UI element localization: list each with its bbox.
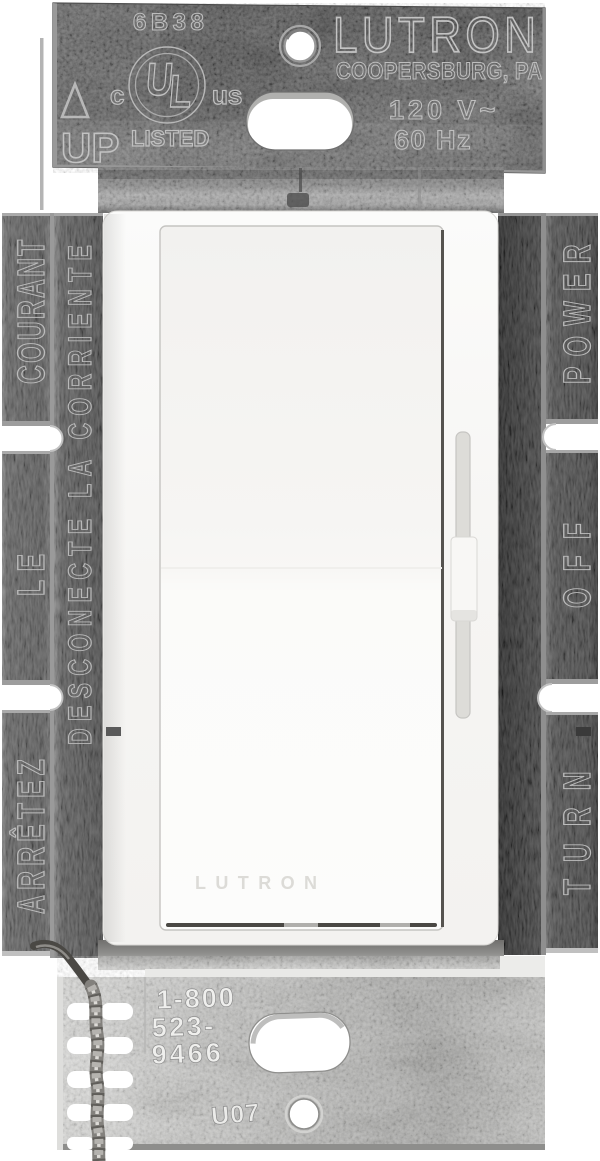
svg-text:LUTRON: LUTRON — [195, 873, 326, 893]
svg-text:POWER: POWER — [555, 234, 598, 384]
svg-text:DESCONECTE LA CORRIENTE: DESCONECTE LA CORRIENTE — [62, 238, 98, 745]
svg-text:60 Hz: 60 Hz — [394, 125, 472, 155]
svg-text:LE: LE — [9, 545, 52, 596]
svg-text:COURANT: COURANT — [9, 238, 52, 384]
svg-text:c: c — [110, 80, 124, 110]
svg-text:6B38: 6B38 — [133, 9, 208, 36]
svg-text:U07: U07 — [210, 1099, 261, 1131]
svg-text:120 V~: 120 V~ — [389, 95, 499, 125]
svg-text:COOPERSBURG, PA: COOPERSBURG, PA — [336, 57, 543, 84]
svg-text:us: us — [212, 80, 242, 110]
svg-text:L: L — [167, 65, 194, 117]
svg-text:UP: UP — [61, 124, 119, 171]
svg-text:OFF: OFF — [555, 507, 598, 608]
svg-text:LUTRON: LUTRON — [333, 6, 540, 62]
svg-text:LISTED: LISTED — [131, 126, 209, 151]
svg-text:TURN: TURN — [555, 755, 598, 895]
svg-text:1-800: 1-800 — [156, 982, 236, 1015]
svg-text:9466: 9466 — [151, 1037, 224, 1069]
svg-text:ARRÊTEZ: ARRÊTEZ — [9, 754, 52, 914]
